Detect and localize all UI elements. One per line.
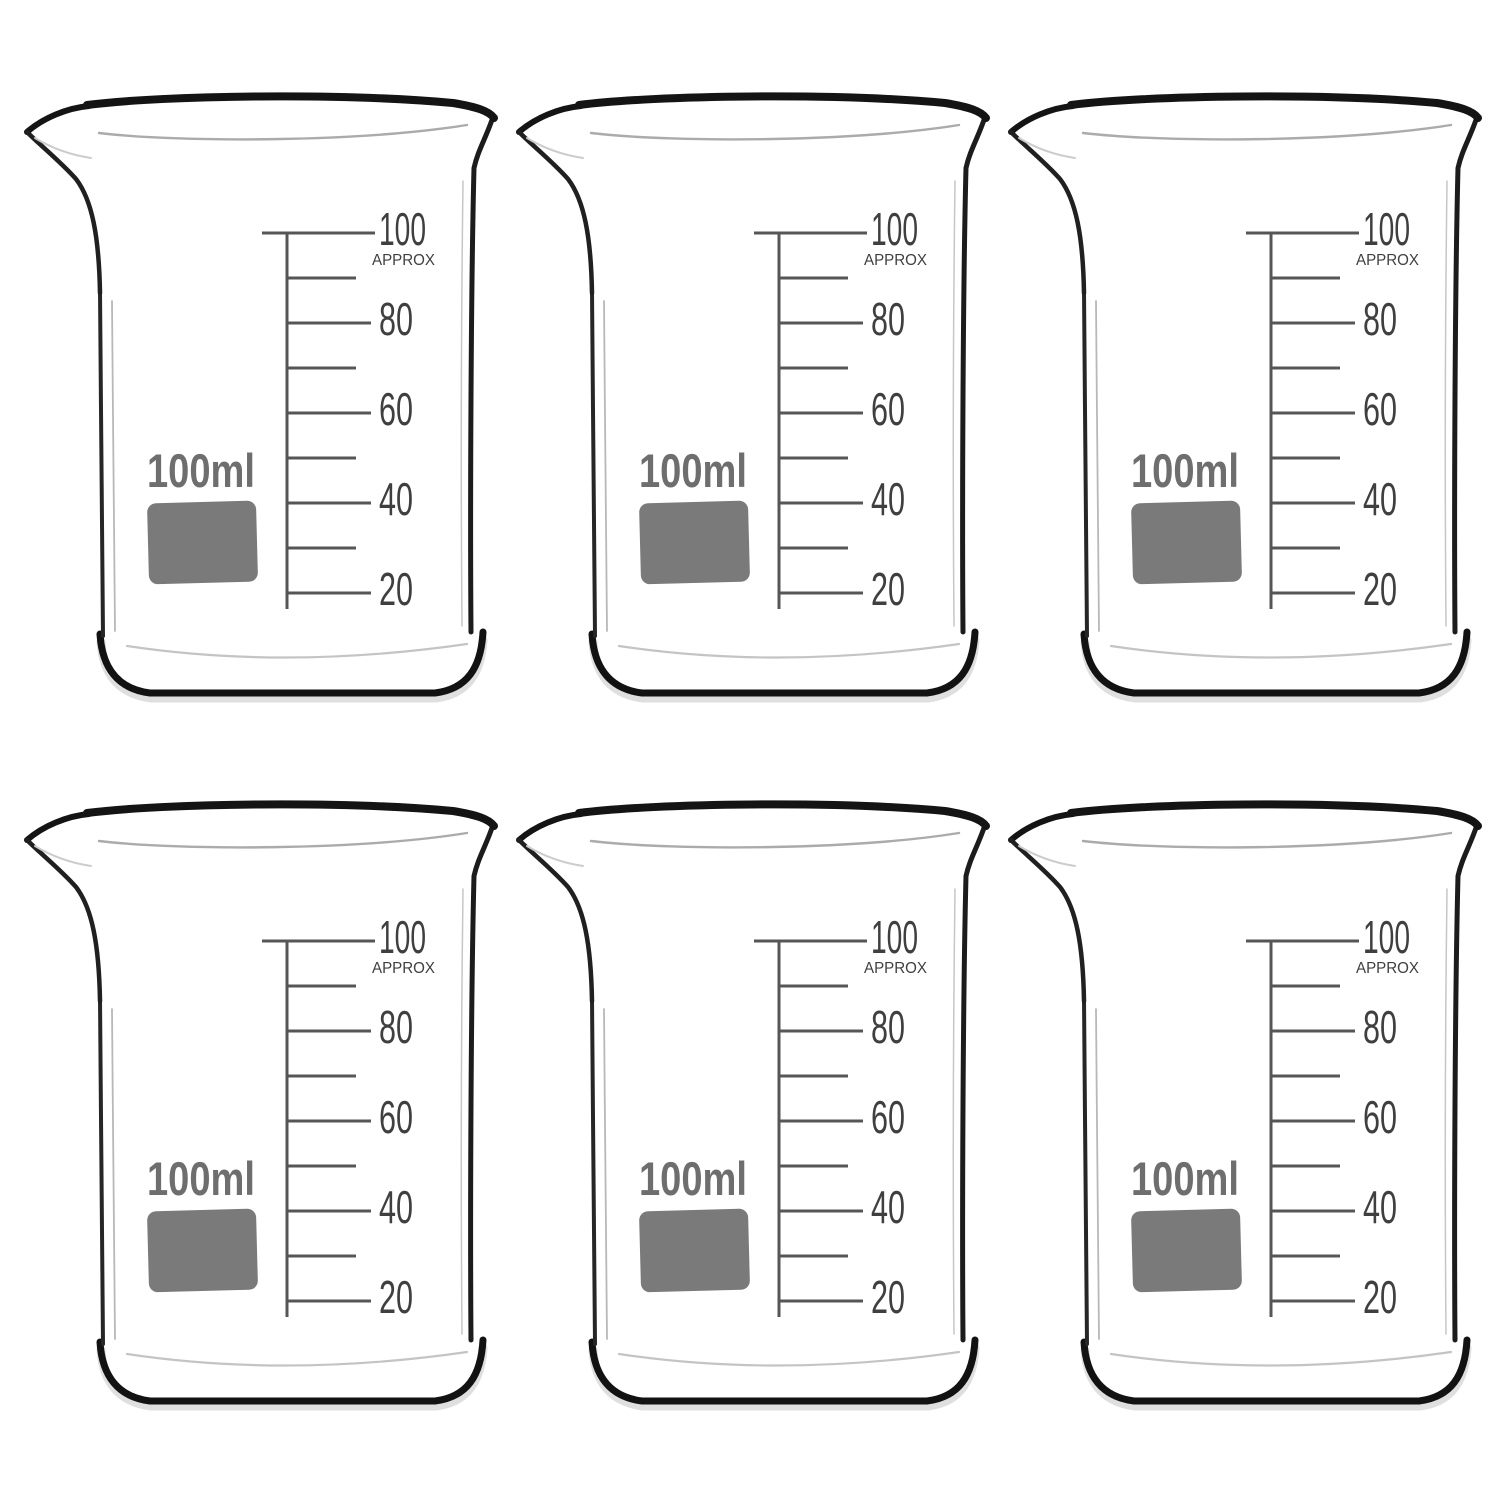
scale-label-40: 40 [871, 473, 905, 525]
capacity-label: 100ml [1131, 1152, 1239, 1205]
capacity-label: 100ml [639, 1152, 747, 1205]
scale-label-40: 40 [1363, 473, 1397, 525]
beaker-row1-col1: 100 APPROX 80 60 40 20 100ml [15, 86, 510, 711]
capacity-label: 100ml [1131, 444, 1239, 497]
beaker-glass-icon [519, 804, 986, 1406]
graduation-scale: 100 APPROX 80 60 40 20 [1356, 203, 1420, 615]
scale-label-80: 80 [871, 293, 905, 345]
scale-approx-label: APPROX [1356, 960, 1420, 977]
scale-label-80: 80 [871, 1001, 905, 1053]
scale-label-100: 100 [379, 203, 426, 255]
beaker-row1-col2: 100 APPROX 80 60 40 20 100ml [507, 86, 1002, 711]
beaker-glass-icon [1011, 96, 1478, 698]
beaker-row2-col3: 100 APPROX 80 60 40 20 100ml [999, 794, 1494, 1419]
scale-approx-label: APPROX [864, 252, 928, 269]
beaker-row1-col3: 100 APPROX 80 60 40 20 100ml [999, 86, 1494, 711]
beaker-grid: 100 APPROX 80 60 40 20 100ml 100 APPROX … [0, 0, 1500, 1500]
graduation-scale: 100 APPROX 80 60 40 20 [372, 203, 436, 615]
beaker-row2-col1: 100 APPROX 80 60 40 20 100ml [15, 794, 510, 1419]
beaker-glass-icon [519, 96, 986, 698]
scale-label-80: 80 [1363, 293, 1397, 345]
scale-label-20: 20 [1363, 563, 1397, 615]
beaker-glass-icon [27, 804, 494, 1406]
scale-label-40: 40 [871, 1181, 905, 1233]
capacity-label: 100ml [147, 444, 255, 497]
scale-label-80: 80 [379, 293, 413, 345]
labeling-square [147, 1209, 258, 1293]
scale-label-100: 100 [379, 911, 426, 963]
scale-label-60: 60 [1363, 1091, 1397, 1143]
scale-label-80: 80 [1363, 1001, 1397, 1053]
beaker-glass-icon [27, 96, 494, 698]
scale-label-100: 100 [1363, 203, 1410, 255]
beaker-glass-icon [1011, 804, 1478, 1406]
labeling-square [1131, 501, 1242, 585]
capacity-label: 100ml [147, 1152, 255, 1205]
scale-label-60: 60 [379, 1091, 413, 1143]
scale-label-100: 100 [1363, 911, 1410, 963]
scale-label-20: 20 [871, 1271, 905, 1323]
labeling-square [639, 1209, 750, 1293]
scale-approx-label: APPROX [864, 960, 928, 977]
scale-label-60: 60 [1363, 383, 1397, 435]
scale-label-20: 20 [871, 563, 905, 615]
scale-label-40: 40 [379, 473, 413, 525]
labeling-square [147, 501, 258, 585]
labeling-square [1131, 1209, 1242, 1293]
graduation-scale: 100 APPROX 80 60 40 20 [864, 911, 928, 1323]
scale-approx-label: APPROX [1356, 252, 1420, 269]
scale-label-80: 80 [379, 1001, 413, 1053]
scale-label-60: 60 [379, 383, 413, 435]
graduation-scale: 100 APPROX 80 60 40 20 [372, 911, 436, 1323]
scale-approx-label: APPROX [372, 252, 436, 269]
scale-label-60: 60 [871, 1091, 905, 1143]
graduation-scale: 100 APPROX 80 60 40 20 [864, 203, 928, 615]
capacity-label: 100ml [639, 444, 747, 497]
scale-approx-label: APPROX [372, 960, 436, 977]
scale-label-20: 20 [1363, 1271, 1397, 1323]
scale-label-100: 100 [871, 203, 918, 255]
scale-label-40: 40 [379, 1181, 413, 1233]
labeling-square [639, 501, 750, 585]
scale-label-100: 100 [871, 911, 918, 963]
beaker-row2-col2: 100 APPROX 80 60 40 20 100ml [507, 794, 1002, 1419]
scale-label-20: 20 [379, 563, 413, 615]
scale-label-20: 20 [379, 1271, 413, 1323]
scale-label-60: 60 [871, 383, 905, 435]
scale-label-40: 40 [1363, 1181, 1397, 1233]
graduation-scale: 100 APPROX 80 60 40 20 [1356, 911, 1420, 1323]
